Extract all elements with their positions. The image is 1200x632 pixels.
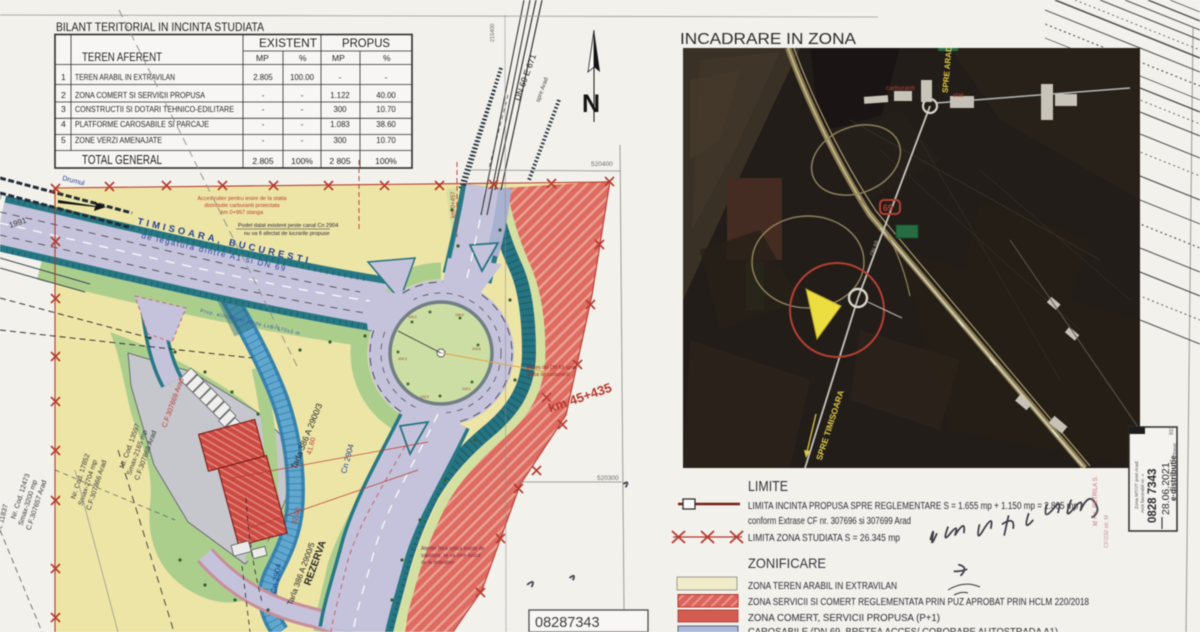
svg-text:3: 3 [61,104,66,114]
svg-text:1.122: 1.122 [330,91,350,100]
svg-text:km 0+457: km 0+457 [451,191,457,218]
svg-text:910: 910 [1169,426,1175,435]
svg-text:CF/232 str. M: CF/232 str. M [1104,515,1110,548]
svg-text:103.9: 103.9 [420,395,429,399]
svg-text:km 0+957 stanga: km 0+957 stanga [221,210,264,216]
svg-text:%: % [383,53,391,63]
svg-text:statia de carburanti: statia de carburanti [527,372,570,378]
svg-text:40.00: 40.00 [376,91,396,100]
svg-text:TEREN ARABIL IN EXTRAVILAN: TEREN ARABIL IN EXTRAVILAN [75,72,175,82]
svg-text:de la detinatori: de la detinatori [421,560,454,566]
svg-text:0828 7343: 0828 7343 [1147,469,1159,523]
svg-text:Atentie fibra optica inante de: Atentie fibra optica inante de [421,546,485,552]
svg-text:-: - [301,120,304,129]
svg-text:-: - [262,120,265,129]
svg-text:-: - [262,136,265,145]
svg-text:69: 69 [883,203,893,213]
svg-text:-: - [262,91,265,100]
svg-text:LIMITE: LIMITE [748,479,788,495]
svg-text:10.70: 10.70 [376,105,396,114]
svg-text:2.805: 2.805 [253,73,273,82]
svg-text:N: N [582,90,600,118]
svg-text:ZONA TEREN ARABIL IN EXTRAVILA: ZONA TEREN ARABIL IN EXTRAVILAN [748,581,897,592]
svg-text:5: 5 [61,135,66,145]
svg-text:2 805: 2 805 [329,156,351,166]
svg-text:103.8: 103.8 [472,347,481,351]
svg-text:ZONA COMERT, SERVICII PROPUSA: ZONA COMERT, SERVICII PROPUSA (P+1) [748,613,940,624]
svg-text:LIMITA INCINTA PROPUSA SPRE RE: LIMITA INCINTA PROPUSA SPRE REGLEMENTARE… [748,501,1078,512]
svg-text:10.70: 10.70 [376,136,396,145]
svg-text:100%: 100% [375,156,397,166]
svg-text:CAROSABILE (DN 69, BRETEA ACCE: CAROSABILE (DN 69, BRETEA ACCES/ COBORAR… [748,627,1058,632]
svg-text:520300: 520300 [597,475,619,482]
svg-text:PLATFORME CAROSABILE SI PARCAJ: PLATFORME CAROSABILE SI PARCAJE [75,119,209,129]
svg-text:-: - [301,91,304,100]
svg-text:104.0: 104.0 [455,313,464,317]
svg-text:ZONA SERVICII SI COMERT REGLEM: ZONA SERVICII SI COMERT REGLEMENTATA PRI… [748,597,1089,608]
svg-text:Podet dalat existent peste can: Podet dalat existent peste canal Cn 2904 [238,223,338,229]
svg-text:LIMITA ZONA STUDIATA S = 26.3: LIMITA ZONA STUDIATA S = 26.345 mp [748,533,900,544]
svg-text:PROPUS: PROPUS [342,38,390,50]
svg-text:EXISTENT: EXISTENT [259,38,317,50]
svg-text:TEREN AFERENT: TEREN AFERENT [82,50,163,64]
svg-text:08287343: 08287343 [535,615,600,631]
svg-text:TOTAL GENERAL: TOTAL GENERAL [82,152,162,167]
svg-text:e·distributie: e·distributie [1169,455,1178,501]
svg-text:-: - [339,73,342,82]
svg-text:Banat: Banat [1172,442,1177,455]
svg-text:-: - [385,73,388,82]
svg-text:38.60: 38.60 [376,120,396,129]
svg-text:carburanti: carburanti [886,85,915,92]
svg-text:nu va fi afectat de lucrarile: nu va fi afectat de lucrarile propuse [244,231,330,237]
svg-text:distributie carburanti proiect: distributie carburanti proiectata [204,203,280,209]
svg-text:ZONIFICARE: ZONIFICARE [748,555,826,571]
svg-text:1.083: 1.083 [330,120,350,129]
svg-text:104.1: 104.1 [462,387,471,391]
svg-text:-: - [262,105,265,114]
svg-text:Id + s. PETRILA S.: Id + s. PETRILA S. [1093,475,1099,526]
svg-text:2: 2 [61,90,66,100]
svg-text:Zona MT/JT post Arad: Zona MT/JT post Arad [1134,461,1140,509]
svg-text:-: - [301,105,304,114]
svg-text:-: - [301,136,304,145]
svg-text:1: 1 [61,72,66,82]
svg-text:300: 300 [333,136,347,145]
svg-text:100.00: 100.00 [290,73,315,82]
svg-text:300: 300 [333,105,347,114]
svg-text:Aviz favorabil nr. =: Aviz favorabil nr. = [1140,474,1146,513]
svg-text:520400: 520400 [591,161,613,168]
svg-text:4: 4 [61,119,66,129]
svg-text:%: % [299,53,307,63]
svg-text:Acces rutier pentru iesire de: Acces rutier pentru iesire de la statia [198,196,288,202]
svg-text:CONSTRUCTII SI DOTARI TEHNICO-: CONSTRUCTII SI DOTARI TEHNICO-EDILITARE [75,104,234,114]
svg-text:BILANT TERITORIAL IN INCINTA S: BILANT TERITORIAL IN INCINTA STUDIATA [56,22,264,34]
svg-text:sapatura; se va cere avizul: sapatura; se va cere avizul [421,553,480,559]
svg-text:INCADRARE IN ZONA: INCADRARE IN ZONA [680,31,856,48]
svg-text:215400: 215400 [490,24,496,42]
svg-text:104.3: 104.3 [398,357,407,361]
svg-text:100%: 100% [291,156,313,166]
svg-text:2.805: 2.805 [252,156,274,166]
svg-text:MP: MP [256,53,269,63]
svg-text:conform Extrase CF nr. 307696: conform Extrase CF nr. 307696 si 307699 … [748,516,911,527]
svg-text:ZONE VERZI AMENAJATE: ZONE VERZI AMENAJATE [75,135,162,145]
svg-text:MP: MP [332,53,345,63]
svg-text:Acces din DN 69 spre: Acces din DN 69 spre [527,365,576,371]
svg-text:stat: stat [953,92,964,99]
svg-text:ZONA COMERT SI SERVICII PROPUS: ZONA COMERT SI SERVICII PROPUSA [75,90,205,100]
svg-text:104.2: 104.2 [408,315,417,319]
